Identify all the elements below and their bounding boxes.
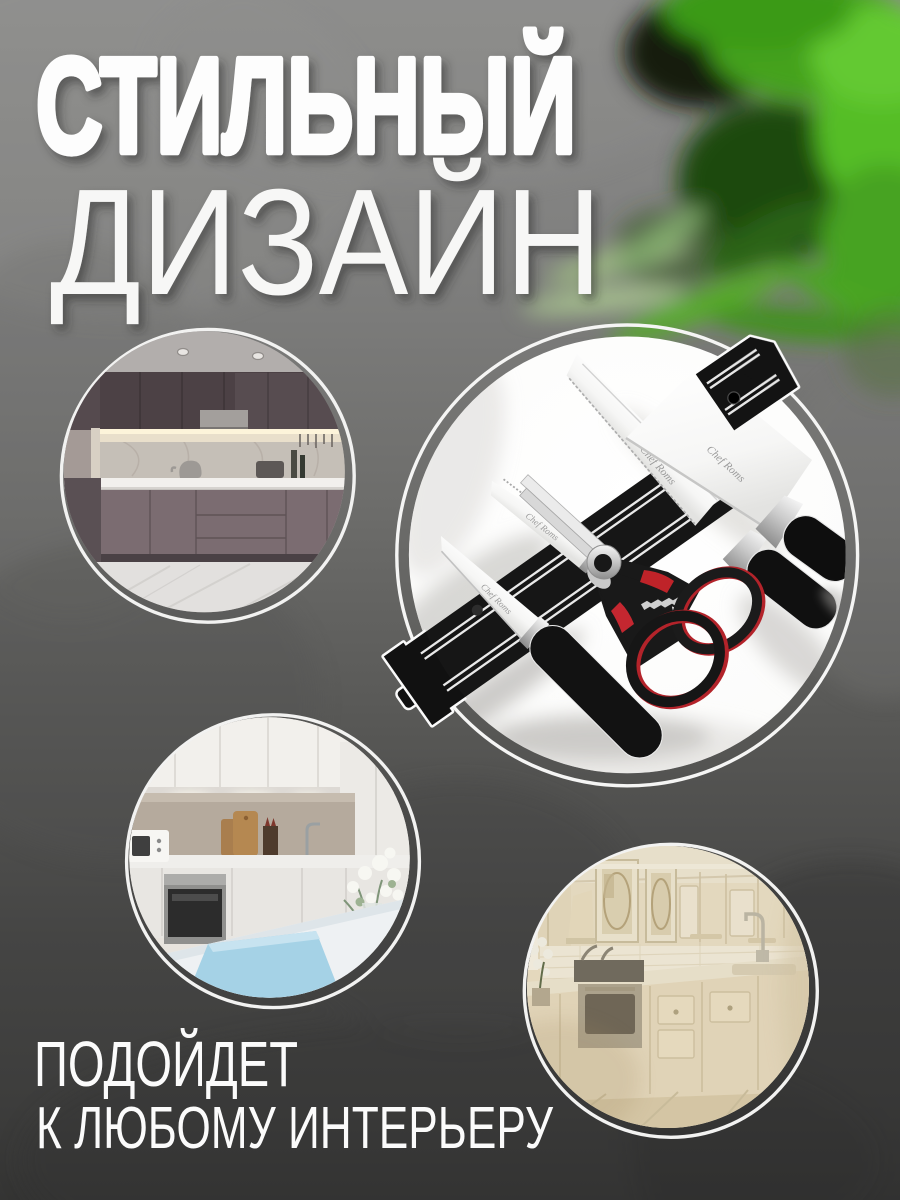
svg-text:К ЛЮБОМУ ИНТЕРЬЕРУ: К ЛЮБОМУ ИНТЕРЬЕРУ — [36, 1095, 553, 1161]
svg-text:ДИЗАЙН: ДИЗАЙН — [50, 157, 602, 326]
svg-text:ПОДОЙДЕТ: ПОДОЙДЕТ — [34, 1027, 298, 1100]
